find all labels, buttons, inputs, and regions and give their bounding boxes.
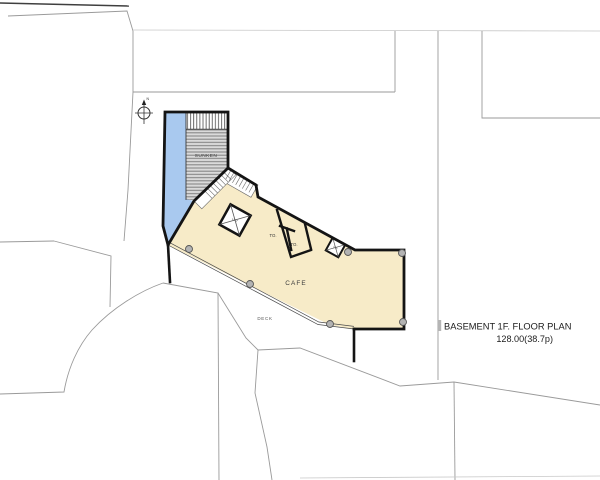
- column: [327, 321, 334, 328]
- north-label: N: [147, 97, 150, 101]
- plan-area: 128.00(38.7p): [496, 334, 553, 344]
- site-line: [8, 11, 133, 31]
- terrain-contour-line: [218, 293, 600, 405]
- column: [247, 281, 254, 288]
- terrain-contour-line: [163, 283, 219, 480]
- terrain-contour-line: [255, 350, 272, 480]
- terrain-contour-line: [0, 283, 163, 394]
- retaining-wall: [168, 245, 170, 282]
- toilet-2-label: TO.: [290, 242, 297, 247]
- north-arrow-icon: N: [135, 97, 153, 124]
- title-block: BASEMENT 1F. FLOOR PLAN 128.00(38.7p): [438, 320, 571, 344]
- column: [400, 319, 407, 326]
- floor-plan-sheet: SUNKEN LIFT DW TO. TO.: [0, 0, 600, 480]
- column: [186, 246, 193, 253]
- entry-stair: [186, 113, 228, 130]
- road-edge-line: [0, 3, 129, 6]
- toilet-1-label: TO.: [269, 233, 276, 238]
- sunken-label: SUNKEN: [195, 153, 218, 159]
- site-line: [482, 31, 600, 118]
- column: [399, 250, 406, 257]
- site-line: [0, 241, 111, 307]
- site-line: [124, 92, 133, 241]
- plan-title: BASEMENT 1F. FLOOR PLAN: [444, 322, 571, 332]
- site-line: [133, 31, 395, 92]
- floor-plan-canvas: SUNKEN LIFT DW TO. TO.: [0, 0, 600, 480]
- cafe-label: CAFE: [285, 280, 306, 287]
- site-line-faint: [133, 30, 600, 31]
- title-marker-bar: [438, 320, 441, 331]
- deck-label: DECK: [257, 316, 272, 321]
- site-line-faint: [300, 476, 600, 478]
- terrain-contour-line: [454, 382, 455, 480]
- column: [345, 249, 352, 256]
